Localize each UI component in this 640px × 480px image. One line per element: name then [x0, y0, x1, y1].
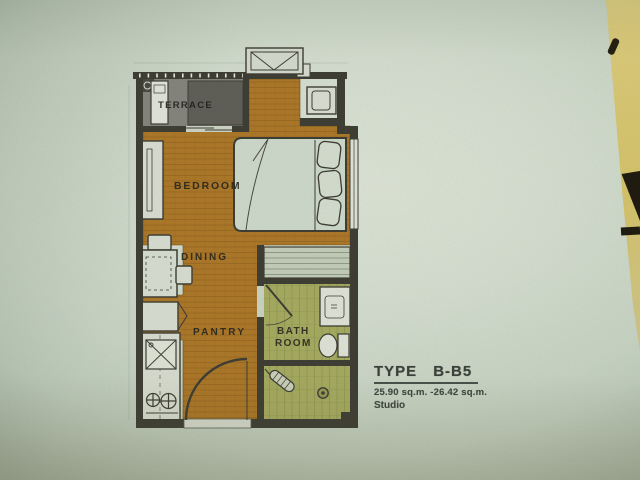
paper-sheet — [0, 0, 640, 480]
area-range: 25.90 sq.m. -26.42 sq.m. — [374, 387, 487, 398]
title-block: TYPE B-B5 25.90 sq.m. -26.42 sq.m. Studi… — [374, 363, 487, 411]
photo-artifact-edge — [621, 227, 640, 236]
unit-type: Studio — [374, 400, 487, 411]
photo-of-floor-plan: TERRACE BEDROOM DINING PANTRY BATH ROOM … — [0, 0, 640, 480]
type-code: B-B5 — [433, 363, 472, 380]
type-title: TYPE B-B5 — [374, 363, 478, 384]
type-label: TYPE — [374, 363, 417, 380]
